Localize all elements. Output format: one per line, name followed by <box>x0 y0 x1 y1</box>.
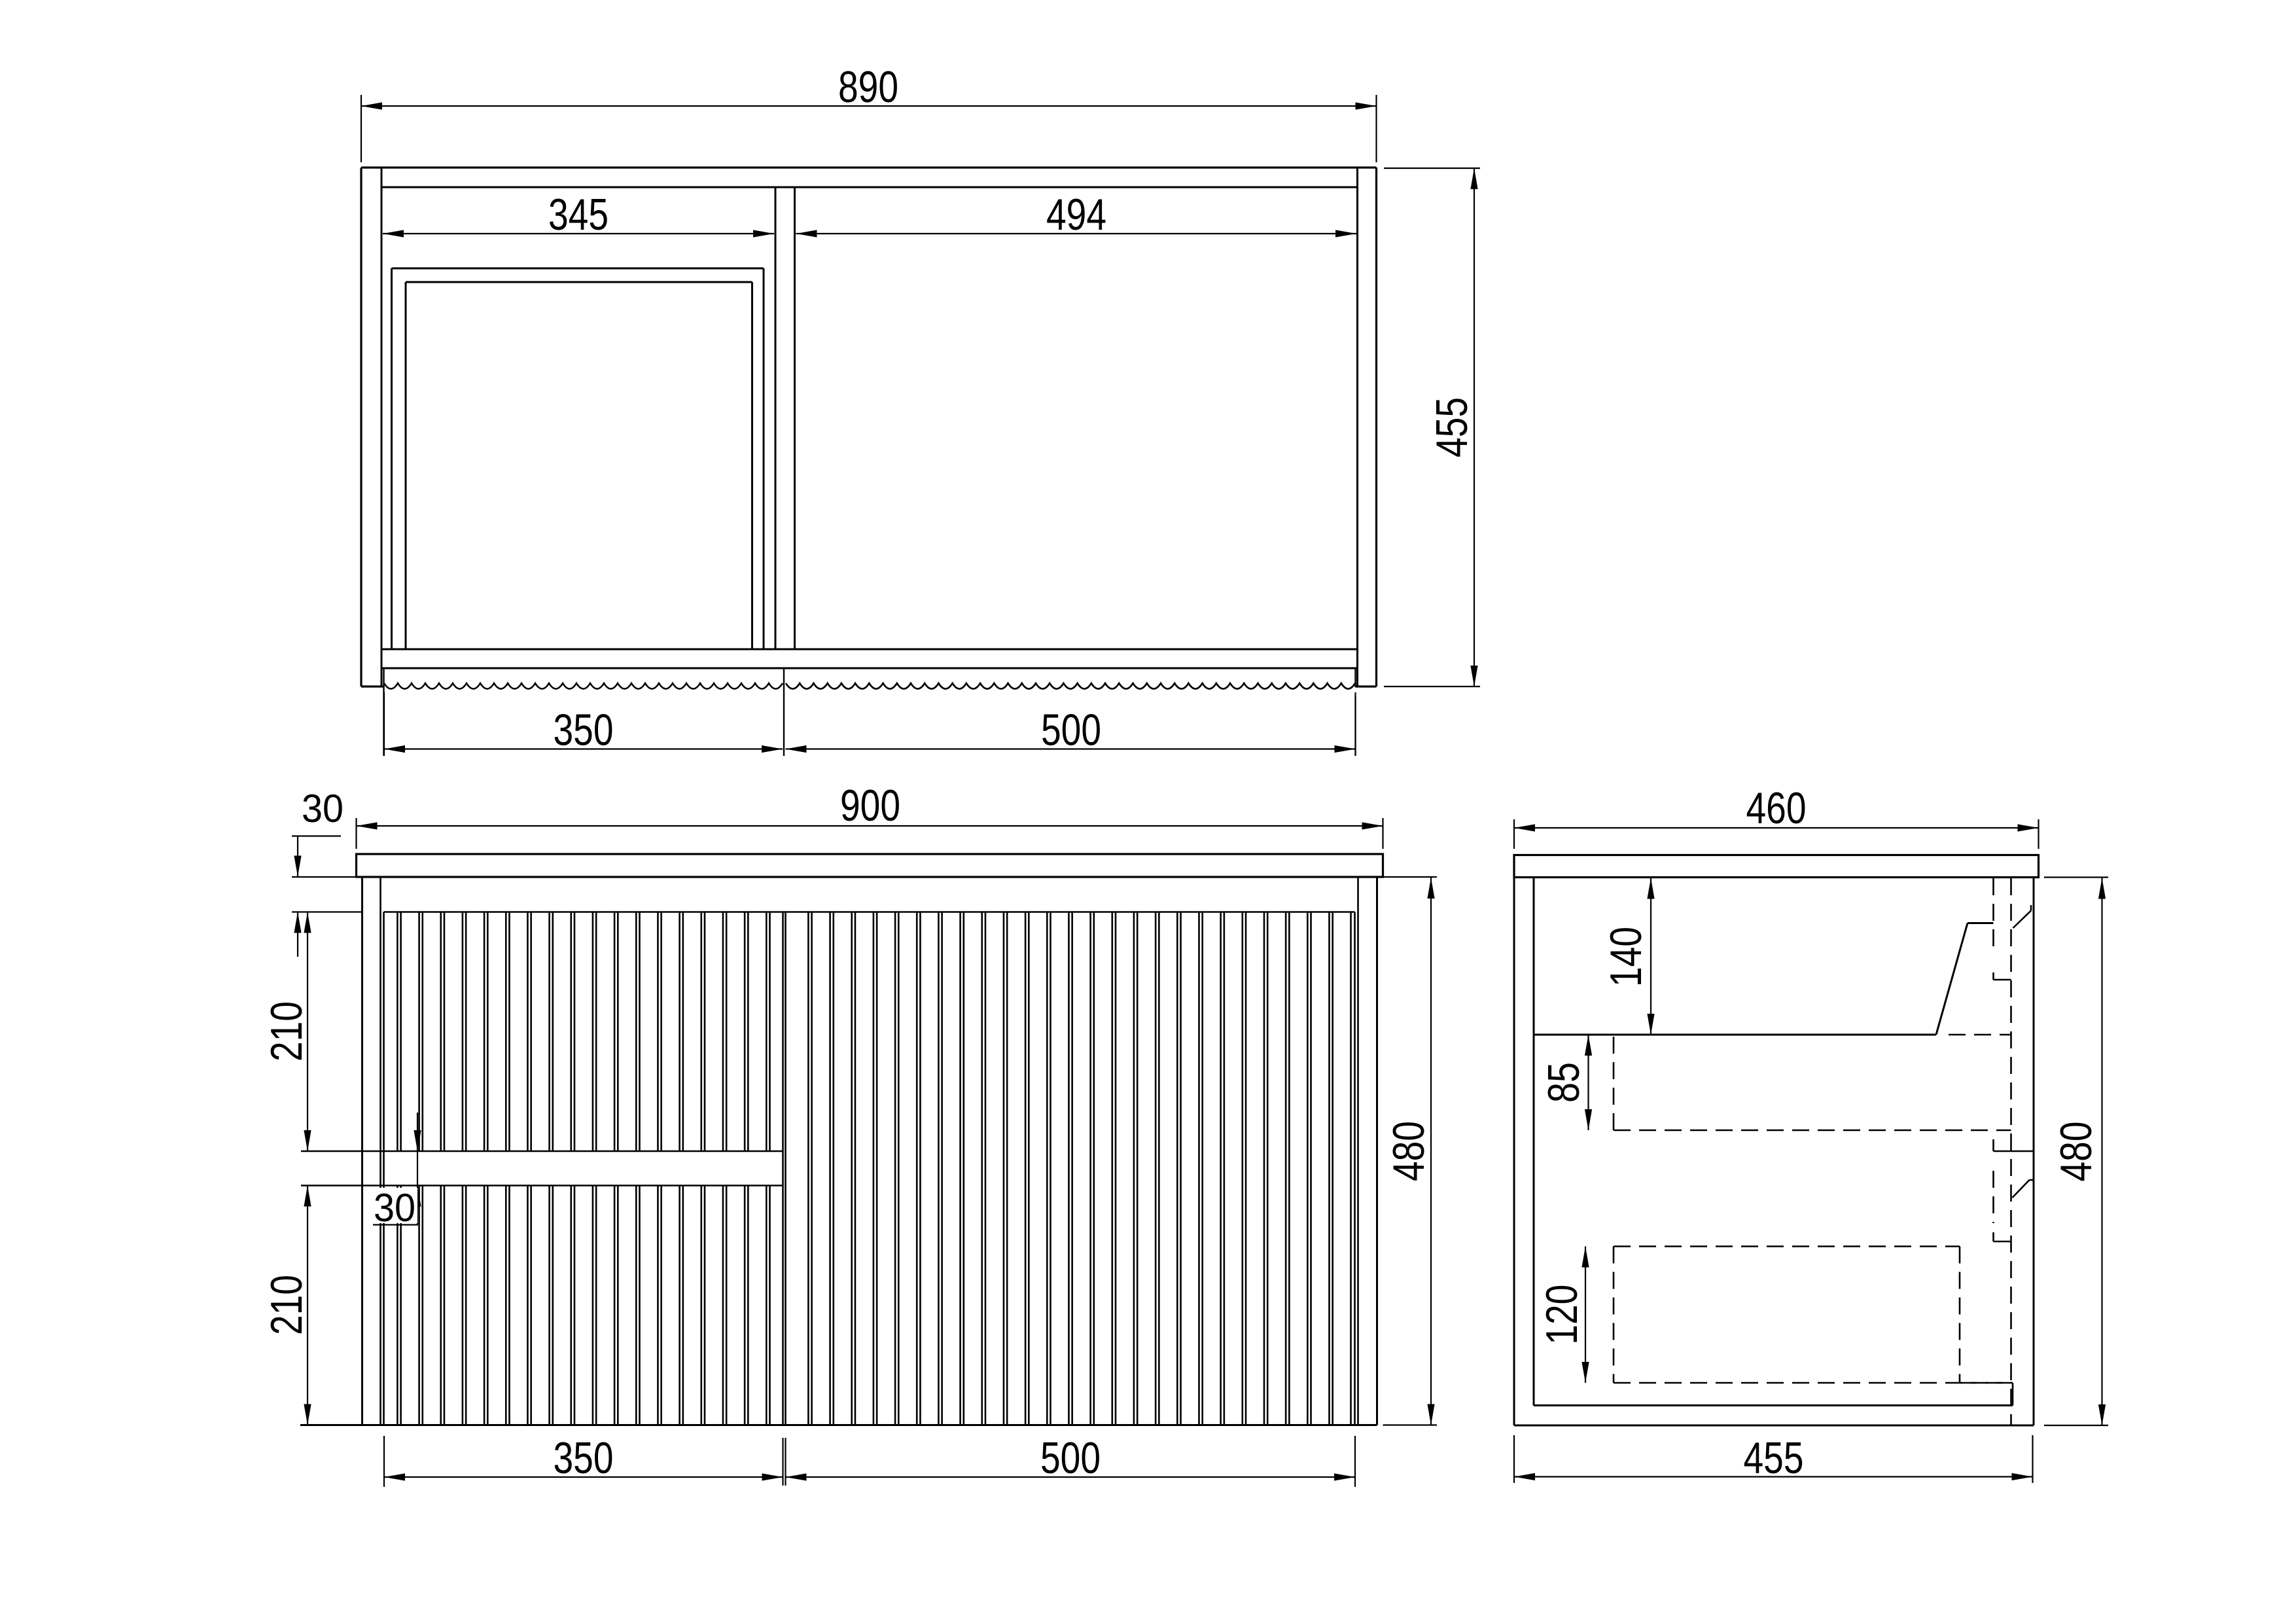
svg-text:30: 30 <box>302 787 344 830</box>
svg-text:210: 210 <box>262 1275 311 1335</box>
svg-text:890: 890 <box>838 62 898 112</box>
svg-text:500: 500 <box>1041 705 1101 755</box>
svg-text:500: 500 <box>1040 1433 1101 1483</box>
svg-text:460: 460 <box>1746 783 1807 833</box>
svg-text:480: 480 <box>1384 1121 1434 1181</box>
svg-text:85: 85 <box>1539 1062 1589 1103</box>
svg-text:455: 455 <box>1427 397 1477 457</box>
svg-text:350: 350 <box>554 705 614 755</box>
svg-text:494: 494 <box>1046 190 1106 240</box>
svg-text:350: 350 <box>554 1433 614 1483</box>
svg-text:210: 210 <box>262 1001 311 1061</box>
svg-text:120: 120 <box>1537 1285 1587 1345</box>
svg-text:480: 480 <box>2051 1122 2101 1182</box>
svg-text:455: 455 <box>1744 1433 1804 1483</box>
svg-text:140: 140 <box>1601 927 1651 987</box>
svg-text:30: 30 <box>374 1186 415 1230</box>
svg-text:345: 345 <box>548 190 609 240</box>
svg-text:900: 900 <box>840 781 900 830</box>
